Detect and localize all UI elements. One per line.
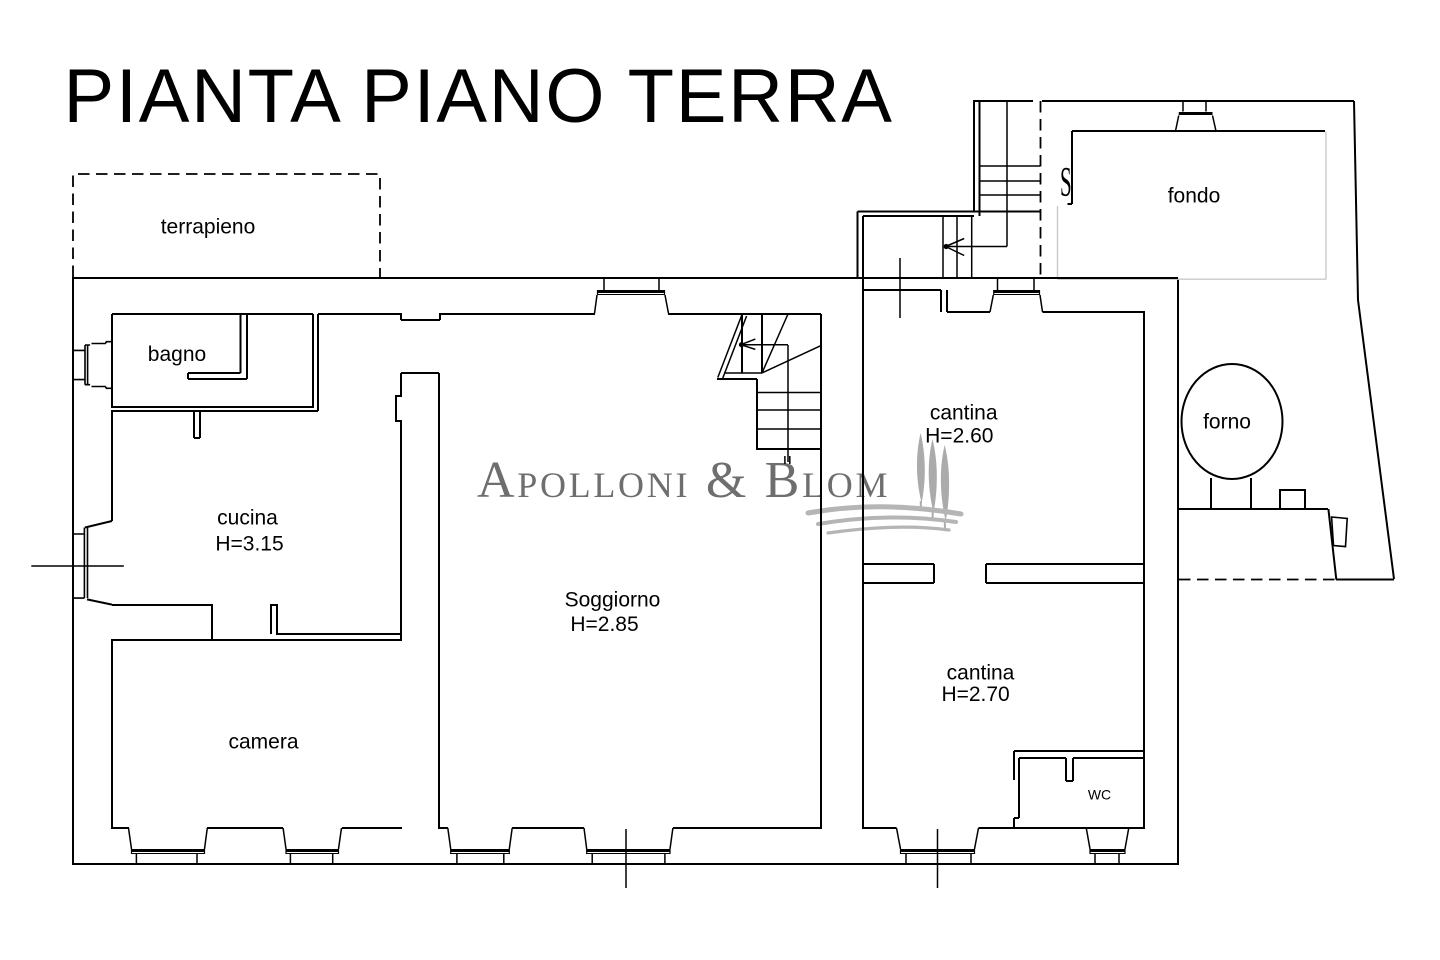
svg-text:cantina: cantina	[930, 402, 998, 425]
svg-text:H=2.70: H=2.70	[941, 683, 1009, 706]
svg-text:terrapieno: terrapieno	[161, 216, 256, 239]
svg-text:H=3.15: H=3.15	[215, 533, 283, 556]
svg-text:S: S	[1060, 159, 1072, 206]
svg-text:PIANTA PIANO TERRA: PIANTA PIANO TERRA	[64, 54, 894, 139]
svg-text:H=2.85: H=2.85	[570, 613, 638, 636]
svg-text:Soggiorno: Soggiorno	[565, 589, 661, 612]
svg-text:forno: forno	[1203, 411, 1251, 434]
svg-text:H=2.60: H=2.60	[925, 425, 993, 448]
svg-text:WC: WC	[1088, 787, 1111, 803]
svg-text:cantina: cantina	[947, 662, 1015, 685]
svg-text:bagno: bagno	[148, 343, 206, 366]
svg-text:Apolloni & Blom: Apolloni & Blom	[477, 452, 890, 509]
svg-text:camera: camera	[228, 731, 298, 754]
svg-text:fondo: fondo	[1168, 185, 1221, 208]
svg-text:cucina: cucina	[217, 507, 278, 530]
